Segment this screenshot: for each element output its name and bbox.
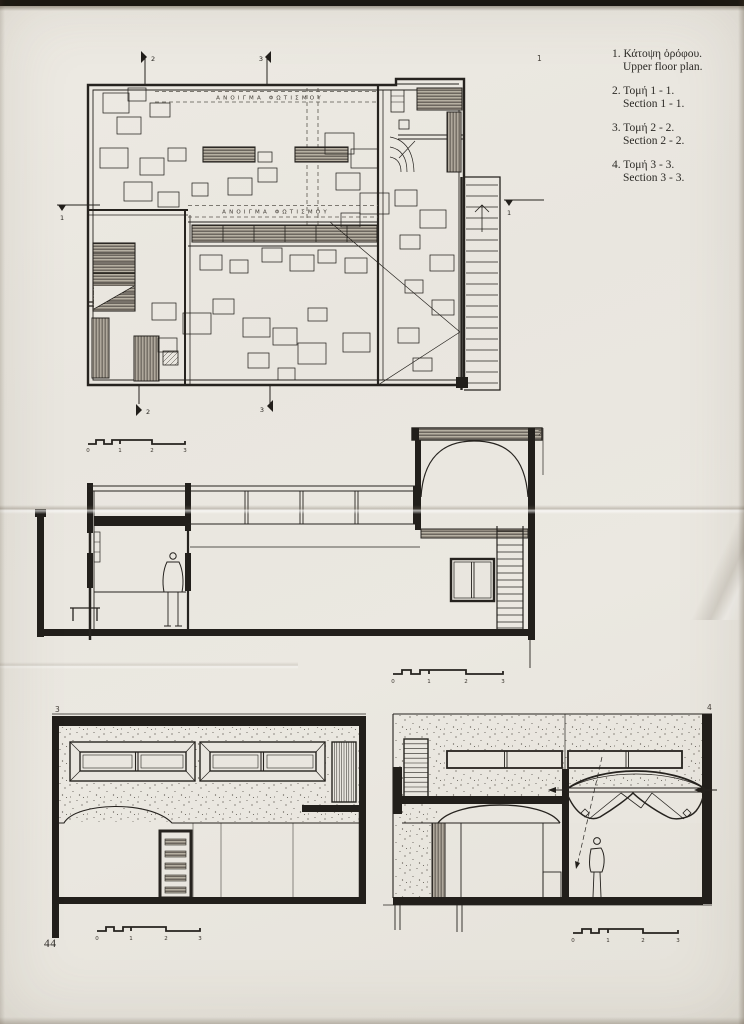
marker-bottom-3: 3: [260, 406, 264, 414]
scale-tick: 1: [606, 938, 610, 944]
ground: [52, 897, 366, 904]
clerestory-band: [188, 486, 420, 547]
louver-top-left: [404, 739, 428, 797]
legend: 1. Κάτοψη ὀρόφου. Upper floor plan. 2. Τ…: [612, 48, 740, 196]
scanned-page: ΑΝΟΙΓΜΑ ΦΩΤΙΣΜΟΥ ΑΝΟΙΓΜΑ ΦΩΤΙΣΜΟΥ: [0, 0, 744, 1024]
marker-right-1: 1: [507, 209, 511, 217]
scale-tick: 2: [150, 448, 154, 454]
section-3-3: 4 0 1 2 3: [383, 703, 717, 944]
legend-english: Upper floor plan.: [612, 61, 740, 74]
section3-scale-bar: 0 1 2 3: [571, 929, 680, 944]
skylight-label-top: ΑΝΟΙΓΜΑ ΦΩΤΙΣΜΟΥ: [216, 96, 324, 102]
legend-item-1: 1. Κάτοψη ὀρόφου. Upper floor plan.: [612, 48, 740, 74]
legend-number: 2.: [612, 85, 621, 97]
drawing-number-1: 1: [537, 54, 542, 63]
section2-scale-bar: 0 1 2 3: [95, 927, 202, 942]
window-strip-left: [447, 751, 562, 768]
legend-greek: Τομή 3 - 3.: [623, 159, 674, 171]
page-number: 44: [44, 938, 57, 950]
left-pier: [35, 509, 46, 637]
drawing-number-2: 2: [538, 429, 543, 438]
legend-item-3: 3. Τομή 2 - 2. Section 2 - 2.: [612, 122, 740, 148]
window-strip-1: [70, 742, 195, 781]
legend-english: Section 1 - 1.: [612, 98, 740, 111]
floor-plan: ΑΝΟΙΓΜΑ ΦΩΤΙΣΜΟΥ ΑΝΟΙΓΜΑ ΦΩΤΙΣΜΟΥ: [57, 51, 544, 454]
legend-greek: Κάτοψη ὀρόφου.: [624, 48, 703, 60]
scale-tick: 0: [95, 936, 99, 942]
scale-tick: 1: [427, 679, 431, 685]
human-figure: [163, 553, 183, 626]
plan-scale-bar: 0 1 2 3: [86, 440, 187, 454]
window-strip-2: [200, 742, 325, 781]
marker-top-2: 2: [151, 55, 155, 63]
legend-greek: Τομή 2 - 2.: [623, 122, 674, 134]
window-strip-right: [568, 751, 682, 768]
human-figure-2: [590, 838, 605, 897]
scale-tick: 2: [641, 938, 645, 944]
legend-number: 4.: [612, 159, 621, 171]
skylight-label-mid: ΑΝΟΙΓΜΑ ΦΩΤΙΣΜΟΥ: [222, 210, 330, 216]
section-1-1: 2 0 1 2 3: [35, 428, 543, 685]
marker-top-3: 3: [259, 55, 263, 63]
scale-tick: 3: [501, 679, 505, 685]
scale-tick: 0: [571, 938, 575, 944]
legend-item-4: 4. Τομή 3 - 3. Section 3 - 3.: [612, 159, 740, 185]
scale-tick: 2: [464, 679, 468, 685]
legend-greek: Τομή 1 - 1.: [623, 85, 674, 97]
scale-tick: 1: [129, 936, 133, 942]
scale-tick: 1: [118, 448, 122, 454]
ground-slab: [40, 629, 535, 636]
plan-wood-elements: [92, 88, 462, 381]
scale-tick: 2: [164, 936, 168, 942]
scale-tick: 3: [198, 936, 202, 942]
louvered-door: [160, 831, 191, 898]
ground: [393, 897, 703, 905]
drawing-number-4: 4: [707, 703, 712, 712]
legend-number: 1.: [612, 48, 621, 60]
plan-annex-fixtures: [390, 90, 415, 172]
legend-number: 3.: [612, 122, 621, 134]
legend-item-2: 2. Τομή 1 - 1. Section 1 - 1.: [612, 85, 740, 111]
scan-edge-fade: [0, 6, 744, 11]
scale-tick: 0: [86, 448, 90, 454]
tower-window: [451, 559, 494, 601]
section1-scale-bar: 0 1 2 3: [391, 670, 505, 685]
drawing-number-3: 3: [55, 705, 60, 714]
stipple-left: [394, 802, 438, 898]
scale-tick: 3: [183, 448, 187, 454]
page-edge-shadow-right: [738, 0, 744, 1024]
right-ledge: [302, 805, 366, 812]
marker-left-1: 1: [60, 214, 64, 222]
page-edge-shadow-bottom: [0, 1017, 744, 1024]
legend-english: Section 2 - 2.: [612, 135, 740, 148]
scale-tick: 3: [676, 938, 680, 944]
floor-slab: [402, 796, 562, 804]
legend-english: Section 3 - 3.: [612, 172, 740, 185]
marker-bottom-2: 2: [146, 408, 150, 416]
right-wall: [702, 714, 712, 904]
section-2-2: 3 0 1 2 3: [52, 705, 366, 942]
scale-tick: 0: [391, 679, 395, 685]
page-edge-shadow-left: [0, 0, 5, 1024]
louver-panel: [332, 742, 356, 802]
plan-staircase: [456, 177, 500, 390]
